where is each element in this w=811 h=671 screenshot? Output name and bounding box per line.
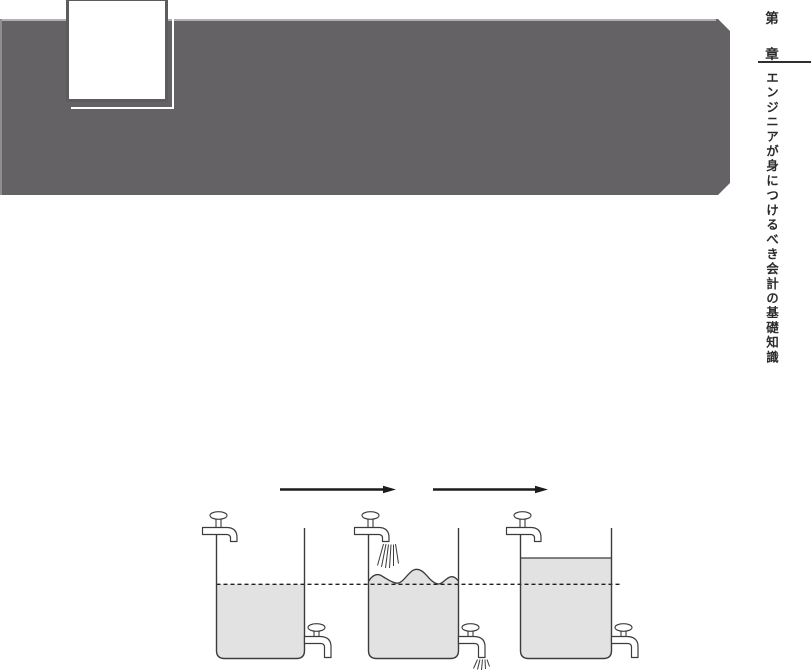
tank-left-bottom-faucet-icon xyxy=(305,624,332,658)
tank-right-bottom-faucet-icon xyxy=(612,624,639,658)
inflow-spray-icon xyxy=(378,544,399,568)
tank-right-top-faucet-icon xyxy=(507,512,542,542)
tank-right-water xyxy=(521,558,612,658)
flow-arrow-right-icon xyxy=(433,486,548,493)
book-page: 第 章 エンジニアが身につけるべき会計の基礎知識 xyxy=(0,0,811,671)
tank-middle-top-faucet-icon xyxy=(355,512,390,542)
flow-arrow-left-icon xyxy=(280,486,396,493)
water-tank-diagram xyxy=(0,0,811,671)
tank-middle-bottom-faucet-icon xyxy=(459,624,486,658)
outflow-spray-icon xyxy=(474,660,490,671)
tank-middle-water xyxy=(369,569,459,657)
tank-left-water xyxy=(217,584,305,658)
tank-left-top-faucet-icon xyxy=(203,512,238,542)
